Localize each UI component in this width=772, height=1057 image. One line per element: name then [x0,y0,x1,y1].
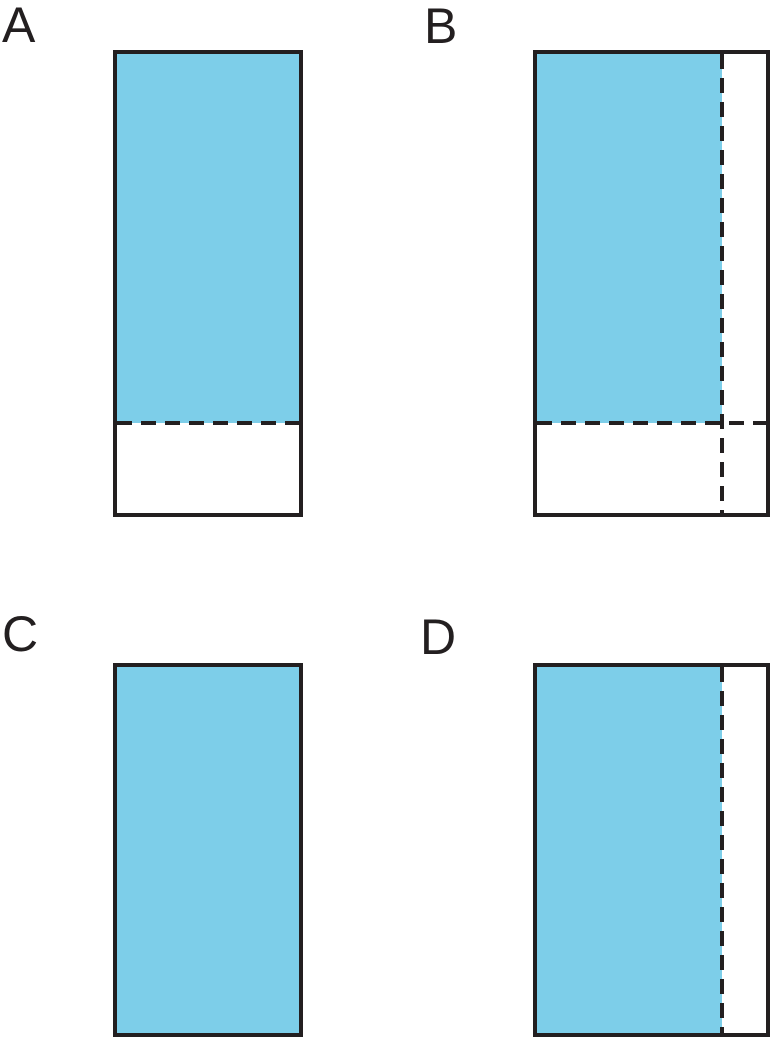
shape-label-B: B [424,1,457,51]
dashed-divider-vertical-D [720,667,724,1033]
rectangle-A [113,50,303,517]
shaded-region-A [117,54,299,423]
shaded-region-B [537,54,722,423]
shape-label-A: A [2,0,35,50]
shaded-region-C [117,667,299,1033]
shaded-region-D [537,667,722,1033]
dashed-divider-horizontal-B [537,421,766,425]
rectangle-D [533,663,770,1037]
dashed-divider-vertical-B [720,54,724,513]
shape-label-D: D [420,612,456,662]
rectangle-B [533,50,770,517]
rectangle-C [113,663,303,1037]
fraction-rectangles-diagram: ABCD [0,0,772,1057]
dashed-divider-horizontal-A [117,421,299,425]
shape-label-C: C [2,609,38,659]
